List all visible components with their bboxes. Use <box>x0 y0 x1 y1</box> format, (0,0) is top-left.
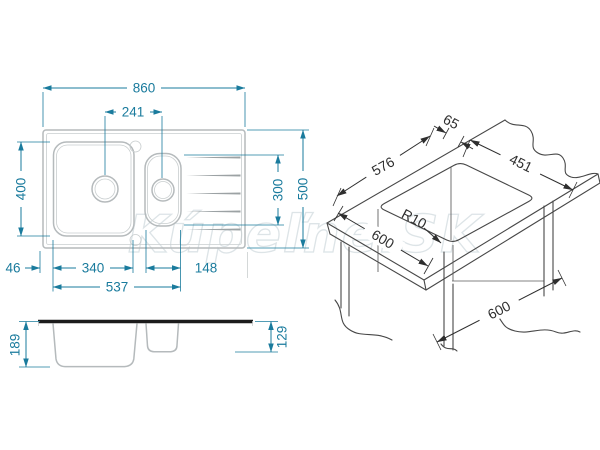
dim-cutout-depth: 451 <box>463 140 577 198</box>
dim-bowl-length: 400 <box>13 142 50 236</box>
main-bowl <box>54 142 135 236</box>
main-drain-outer <box>92 176 118 202</box>
dim-bowls-span: 537 <box>53 279 181 294</box>
dim-left-offset: 46 <box>5 251 40 275</box>
svg-text:300: 300 <box>270 179 285 202</box>
side-view: 189 129 <box>7 321 289 367</box>
half-drain-inner <box>155 182 172 199</box>
dim-main-bowl-depth: 189 <box>7 322 50 368</box>
half-drain-outer <box>152 179 174 201</box>
svg-text:46: 46 <box>5 260 20 275</box>
svg-text:148: 148 <box>195 260 218 275</box>
main-drain-inner <box>95 179 115 199</box>
dim-cutout-width: 576 <box>333 128 434 206</box>
svg-text:537: 537 <box>106 279 129 294</box>
svg-text:189: 189 <box>7 334 22 357</box>
svg-text:860: 860 <box>133 80 156 95</box>
svg-text:65: 65 <box>441 111 462 133</box>
svg-text:129: 129 <box>274 326 289 349</box>
svg-text:340: 340 <box>82 260 105 275</box>
broken-edge-front-post <box>441 344 457 351</box>
svg-text:400: 400 <box>13 178 28 201</box>
sink-technical-drawing: Kúpeľne.SK 860 <box>0 0 600 450</box>
svg-text:500: 500 <box>295 178 310 201</box>
main-bowl-inner-contour <box>57 145 132 233</box>
broken-edge-left-panel <box>335 300 392 340</box>
main-bowl-profile <box>53 324 137 367</box>
dim-half-bowl-depth: 129 <box>235 322 289 353</box>
half-bowl-profile <box>146 324 179 352</box>
svg-text:241: 241 <box>122 104 145 119</box>
dim-edge-offset: 65 <box>434 111 473 149</box>
